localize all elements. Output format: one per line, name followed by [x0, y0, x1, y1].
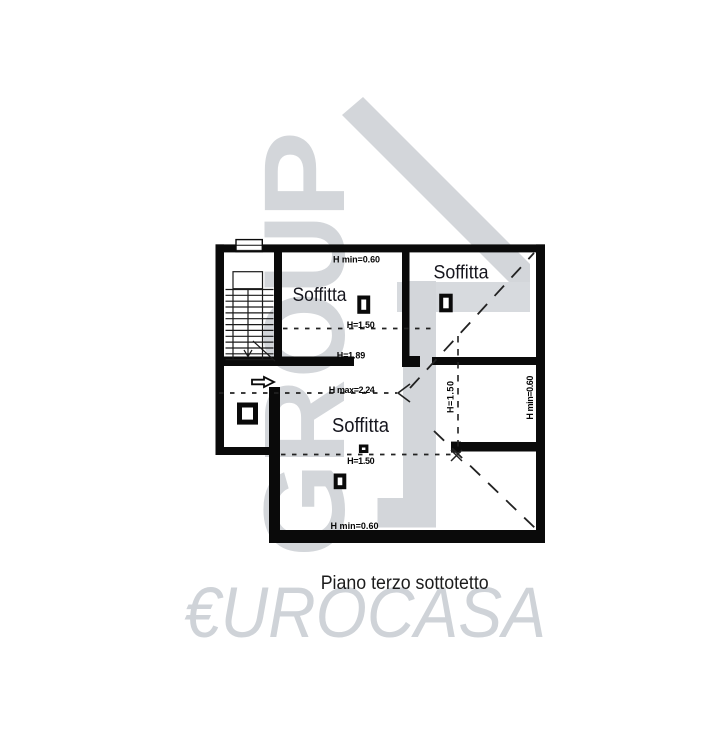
- svg-text:Soffitta: Soffitta: [332, 415, 390, 437]
- svg-text:H min=0.60: H min=0.60: [331, 521, 379, 531]
- svg-text:Piano terzo sottotetto: Piano terzo sottotetto: [321, 572, 489, 594]
- svg-text:Soffitta: Soffitta: [293, 284, 347, 306]
- svg-text:H max=2.24: H max=2.24: [329, 385, 375, 395]
- svg-text:H=1.50: H=1.50: [347, 456, 375, 466]
- svg-text:H min=0.60: H min=0.60: [333, 254, 380, 264]
- svg-text:P: P: [241, 131, 369, 219]
- svg-text:Soffitta: Soffitta: [434, 262, 489, 284]
- svg-text:H=1.50: H=1.50: [446, 381, 456, 413]
- svg-text:H=1.89: H=1.89: [337, 350, 366, 360]
- svg-text:H min=0.60: H min=0.60: [525, 376, 535, 420]
- svg-text:H=1.50: H=1.50: [347, 320, 375, 330]
